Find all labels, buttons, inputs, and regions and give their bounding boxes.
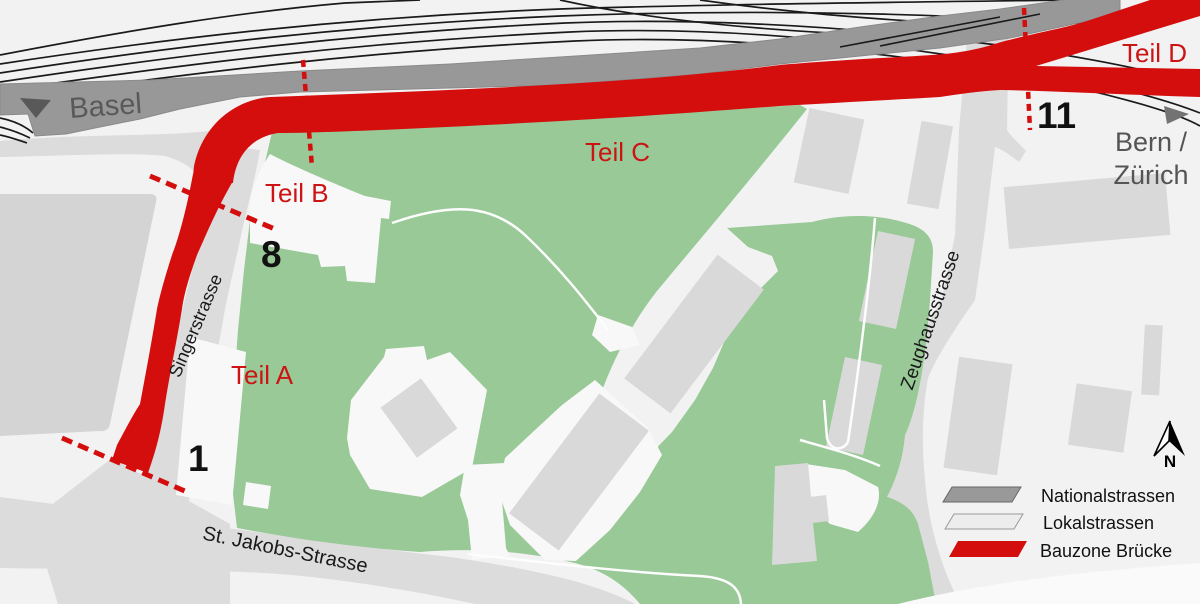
svg-text:Teil D: Teil D	[1122, 38, 1187, 68]
svg-text:Bauzone Brücke: Bauzone Brücke	[1040, 541, 1172, 561]
svg-text:Nationalstrassen: Nationalstrassen	[1041, 486, 1175, 506]
svg-text:N: N	[1164, 452, 1176, 471]
svg-text:Teil A: Teil A	[231, 360, 294, 390]
svg-text:Teil B: Teil B	[265, 178, 329, 208]
svg-text:11: 11	[1037, 95, 1076, 136]
svg-text:Teil C: Teil C	[585, 137, 650, 167]
svg-text:Bern /: Bern /	[1115, 127, 1188, 157]
svg-text:Basel: Basel	[68, 88, 143, 125]
svg-text:8: 8	[261, 234, 282, 275]
svg-text:Lokalstrassen: Lokalstrassen	[1043, 513, 1154, 533]
svg-text:Zürich: Zürich	[1113, 160, 1188, 190]
svg-text:1: 1	[188, 438, 209, 479]
